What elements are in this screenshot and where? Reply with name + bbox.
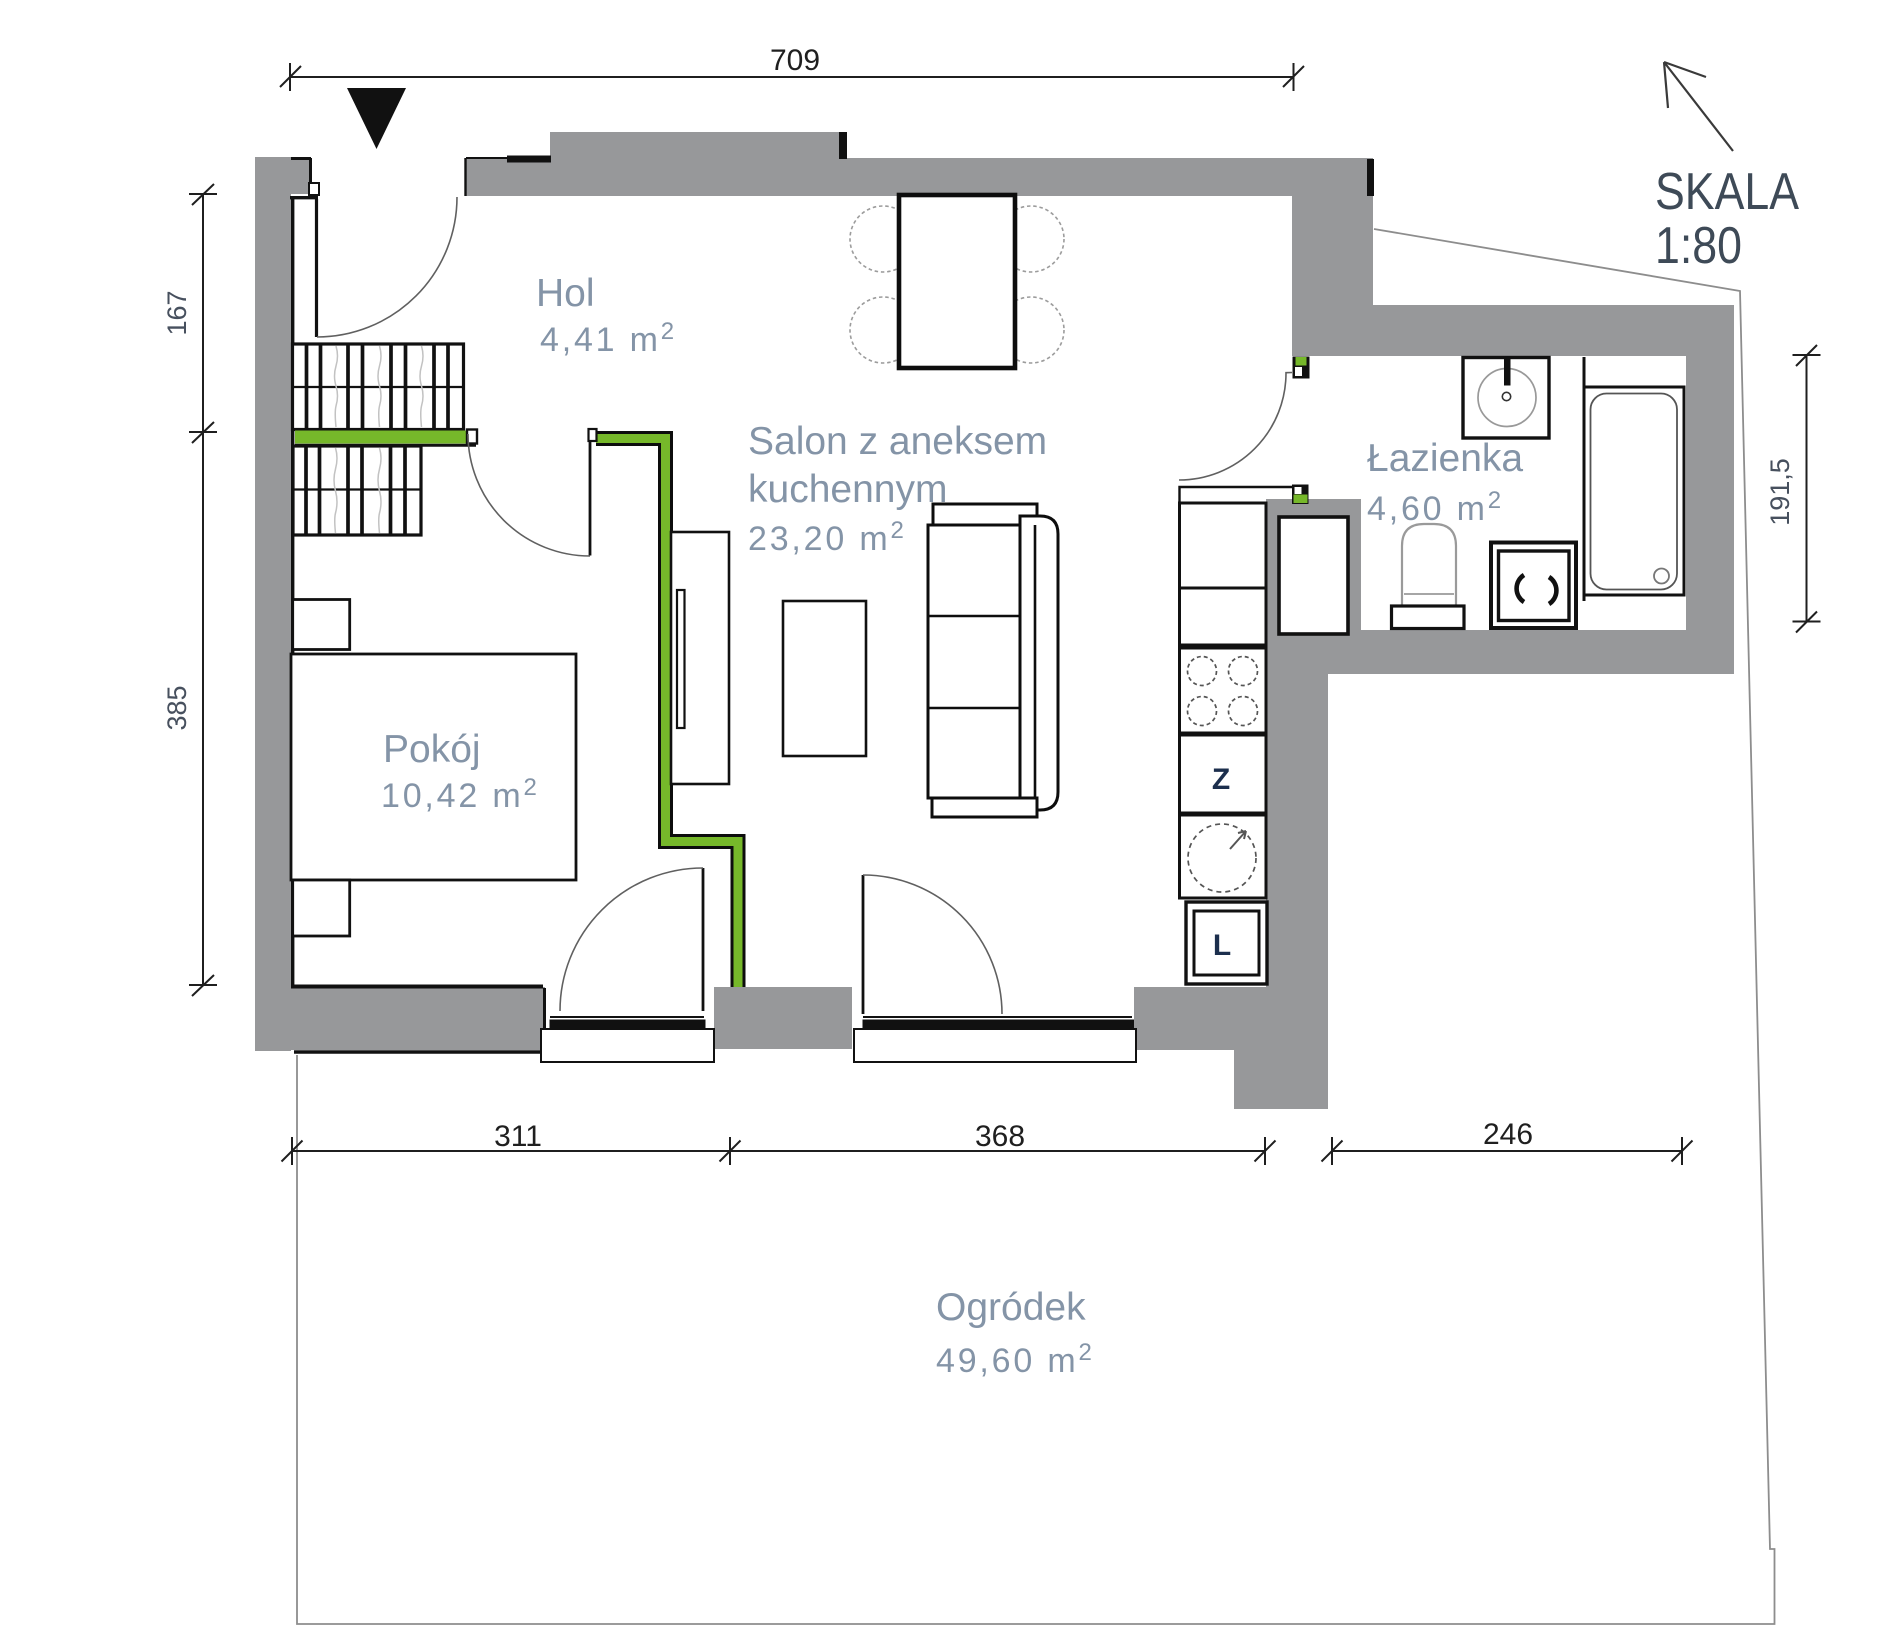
svg-text:385: 385 [162,685,192,730]
svg-text:Z: Z [1212,763,1230,796]
svg-text:311: 311 [494,1120,542,1153]
svg-text:SKALA: SKALA [1655,163,1799,221]
svg-text:Salon z aneksem: Salon z aneksem [748,420,1047,463]
svg-text:191,5: 191,5 [1765,458,1795,526]
svg-text:Hol: Hol [536,272,595,315]
svg-text:L: L [1213,929,1231,962]
svg-text:23,20 m2: 23,20 m2 [748,517,907,558]
svg-text:Łazienka: Łazienka [1367,437,1523,480]
svg-text:1:80: 1:80 [1655,217,1742,275]
svg-text:709: 709 [770,44,820,77]
svg-text:Ogródek: Ogródek [936,1286,1086,1329]
svg-text:10,42 m2: 10,42 m2 [381,774,540,815]
svg-text:kuchennym: kuchennym [748,468,947,511]
svg-text:Pokój: Pokój [383,728,481,771]
svg-text:167: 167 [162,290,192,335]
svg-text:246: 246 [1483,1118,1533,1151]
svg-text:368: 368 [975,1120,1025,1153]
svg-text:4,41 m2: 4,41 m2 [540,318,677,359]
svg-text:49,60 m2: 49,60 m2 [936,1339,1095,1380]
svg-text:4,60 m2: 4,60 m2 [1367,487,1504,528]
